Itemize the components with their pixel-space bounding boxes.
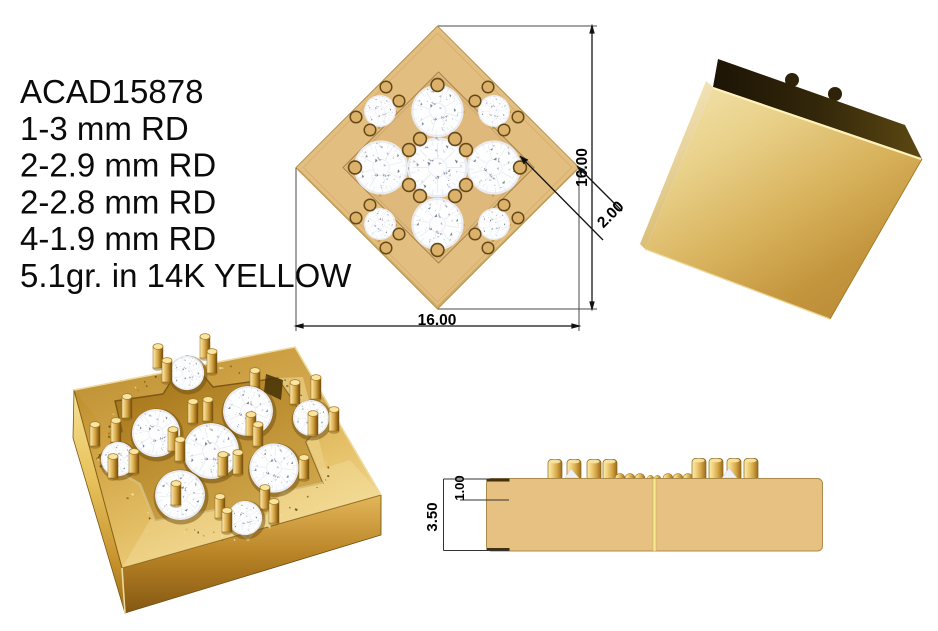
- svg-text:4-1.9 mm RD: 4-1.9 mm RD: [20, 220, 216, 257]
- svg-text:1.00: 1.00: [452, 475, 467, 500]
- svg-text:3.50: 3.50: [424, 502, 441, 531]
- svg-text:16.00: 16.00: [418, 312, 457, 329]
- svg-text:16.00: 16.00: [574, 148, 591, 187]
- svg-text:2-2.8 mm RD: 2-2.8 mm RD: [20, 183, 216, 220]
- svg-text:5.1gr. in 14K YELLOW: 5.1gr. in 14K YELLOW: [20, 257, 352, 294]
- svg-text:1-3 mm RD: 1-3 mm RD: [20, 110, 189, 147]
- svg-text:ACAD15878: ACAD15878: [20, 73, 203, 110]
- svg-text:2-2.9 mm RD: 2-2.9 mm RD: [20, 147, 216, 184]
